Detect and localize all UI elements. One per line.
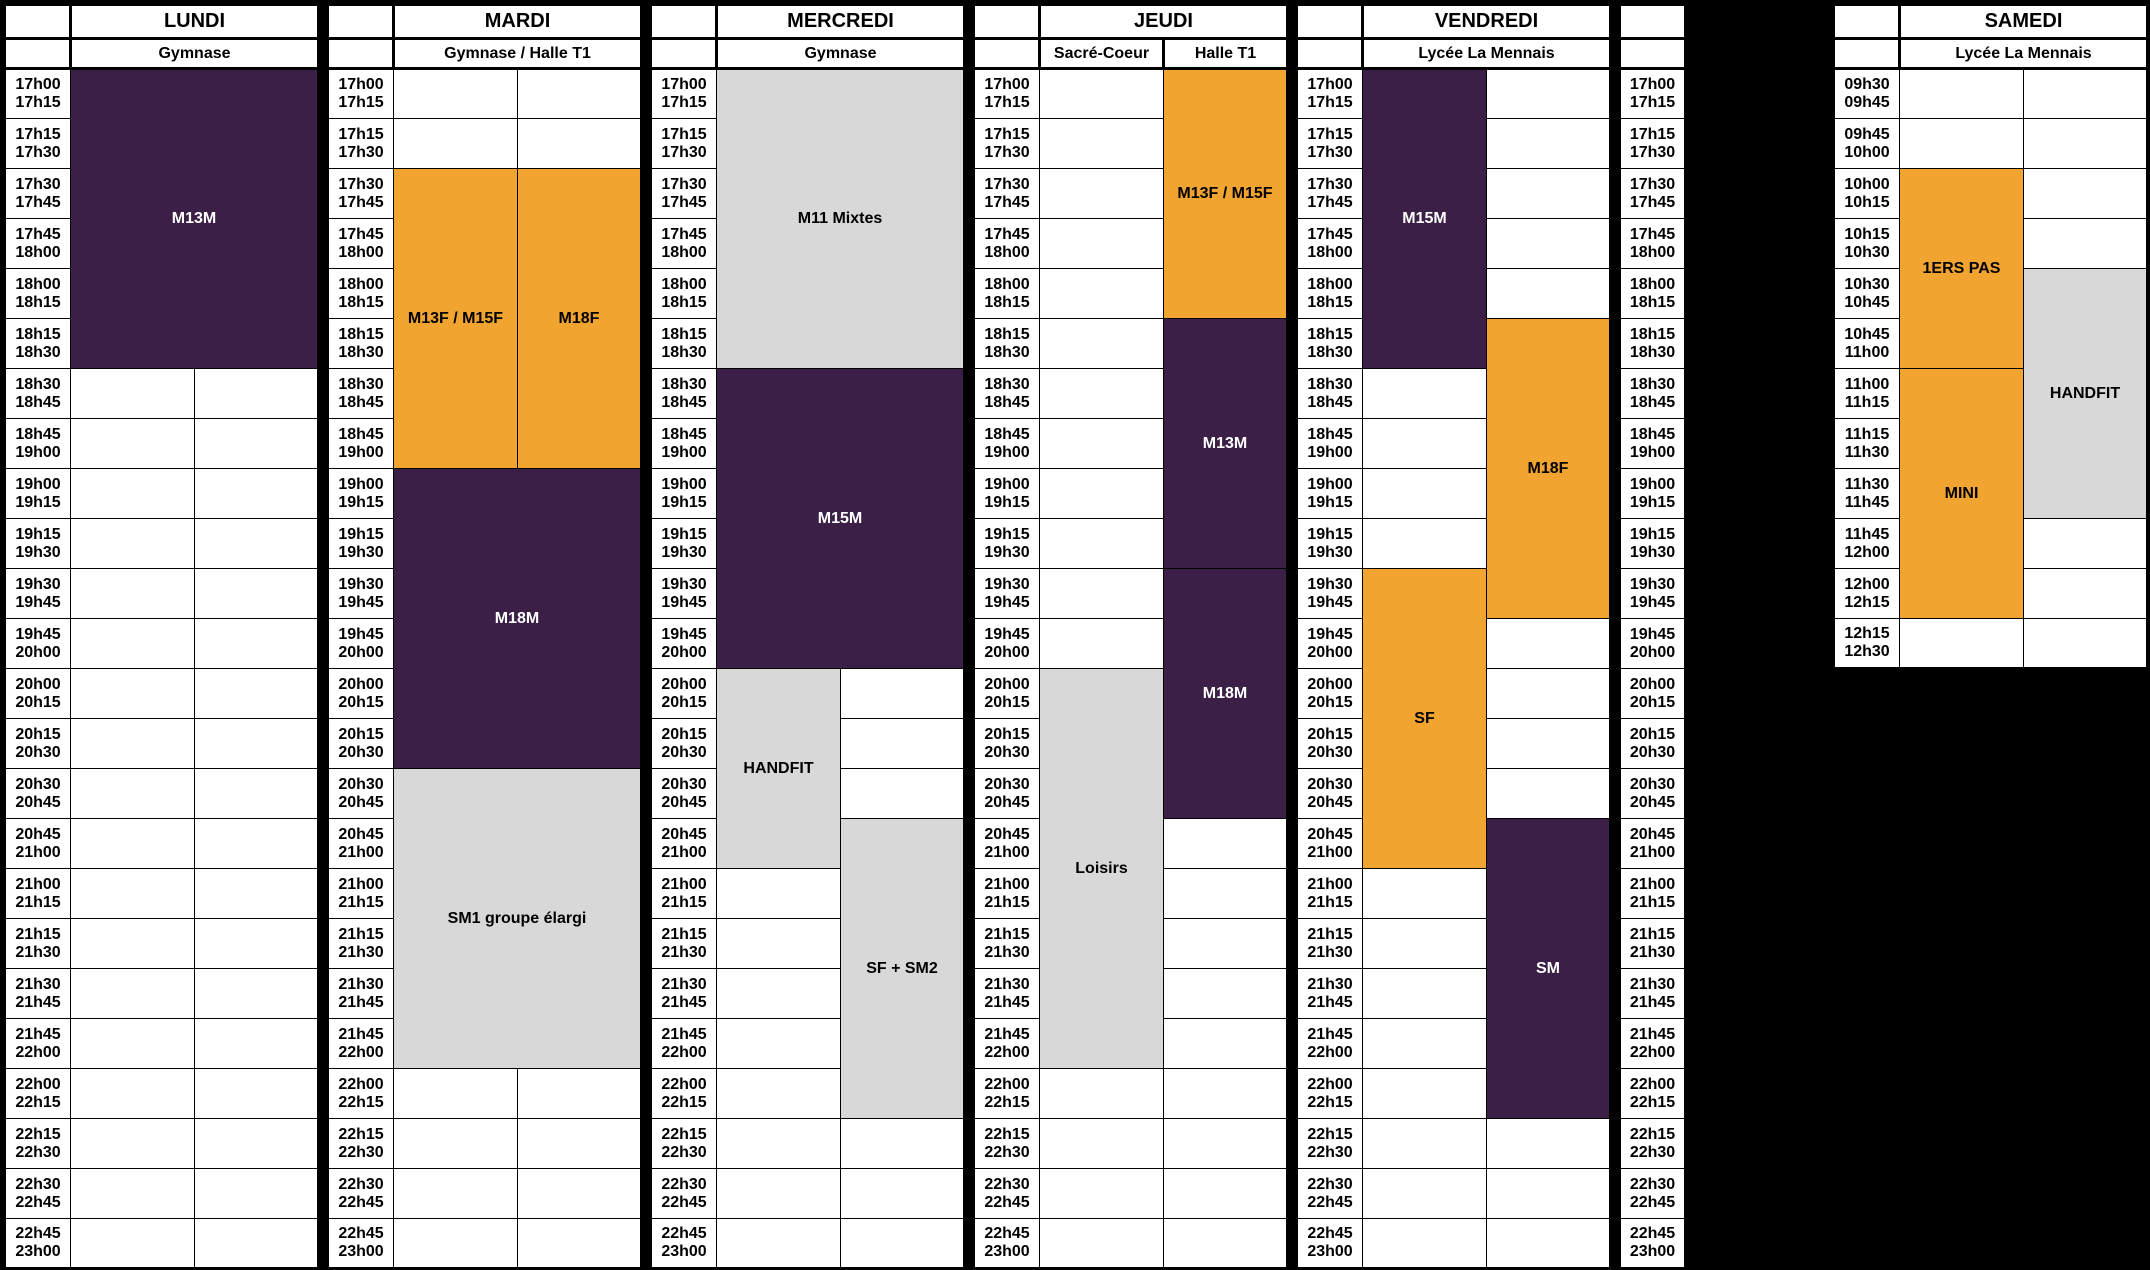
time-start-label: 18h15	[1298, 326, 1362, 344]
empty-slot	[1363, 1069, 1487, 1119]
time-slot-cell: 22h0022h15	[328, 1069, 394, 1119]
time-slot-cell: 18h3018h45	[5, 369, 71, 419]
time-slot-cell: 20h3020h45	[1620, 769, 1686, 819]
time-start-label: 22h15	[1298, 1126, 1362, 1144]
time-slot-cell: 20h0020h15	[651, 669, 717, 719]
time-slot-cell: 11h4512h00	[1834, 519, 1900, 569]
time-start-label: 22h30	[1298, 1176, 1362, 1194]
time-start-label: 21h15	[652, 926, 716, 944]
time-start-label: 19h30	[652, 576, 716, 594]
time-end-label: 21h00	[975, 844, 1039, 862]
time-end-label: 18h45	[1298, 394, 1362, 412]
time-start-label: 21h15	[329, 926, 393, 944]
time-slot-cell: 22h4523h00	[974, 1219, 1040, 1269]
venue-header: Lycée La Mennais	[1900, 39, 2148, 69]
time-slot-cell: 19h0019h15	[974, 469, 1040, 519]
time-start-label: 11h00	[1835, 376, 1899, 394]
time-end-label: 19h30	[6, 544, 70, 562]
time-start-label: 20h45	[6, 826, 70, 844]
schedule-canvas: LUNDIGymnase17h0017h15M13M17h1517h3017h3…	[0, 0, 2150, 1270]
time-start-label: 21h45	[1621, 1026, 1684, 1044]
corner-cell	[651, 5, 717, 39]
time-start-label: 22h30	[652, 1176, 716, 1194]
day-header: LUNDI	[71, 5, 319, 39]
day-table-mercredi: MERCREDIGymnase17h0017h15M11 Mixtes17h15…	[649, 3, 966, 1270]
time-slot-cell: 17h0017h15	[5, 69, 71, 119]
empty-slot	[1040, 569, 1164, 619]
time-start-label: 22h00	[652, 1076, 716, 1094]
time-start-label: 22h15	[652, 1126, 716, 1144]
time-slot-cell: 18h1518h30	[5, 319, 71, 369]
time-slot-cell: 18h4519h00	[651, 419, 717, 469]
time-end-label: 18h00	[1298, 244, 1362, 262]
time-end-label: 20h15	[6, 694, 70, 712]
time-end-label: 17h30	[1298, 144, 1362, 162]
time-slot-cell: 22h3022h45	[974, 1169, 1040, 1219]
time-end-label: 22h00	[975, 1044, 1039, 1062]
day-table-jeudi: JEUDISacré-CoeurHalle T117h0017h15M13F /…	[972, 3, 1289, 1270]
empty-slot	[1040, 269, 1164, 319]
time-end-label: 19h30	[329, 544, 393, 562]
time-end-label: 20h00	[1621, 644, 1684, 662]
time-start-label: 20h00	[975, 676, 1039, 694]
empty-slot	[1040, 419, 1164, 469]
time-slot-cell: 22h1522h30	[328, 1119, 394, 1169]
time-start-label: 21h00	[975, 876, 1039, 894]
time-end-label: 19h00	[1621, 444, 1684, 462]
empty-slot	[195, 569, 319, 619]
empty-slot	[1487, 1169, 1611, 1219]
time-start-label: 11h15	[1835, 426, 1899, 444]
time-start-label: 20h00	[1298, 676, 1362, 694]
empty-slot	[518, 69, 642, 119]
time-start-label: 21h30	[1621, 976, 1684, 994]
event-m13f-m15f: M13F / M15F	[394, 169, 518, 469]
empty-slot	[195, 719, 319, 769]
time-start-label: 20h15	[329, 726, 393, 744]
time-end-label: 22h45	[1621, 1194, 1684, 1212]
time-start-label: 18h30	[975, 376, 1039, 394]
empty-slot	[71, 1169, 195, 1219]
empty-slot	[1363, 919, 1487, 969]
time-start-label: 19h00	[329, 476, 393, 494]
time-end-label: 18h30	[652, 344, 716, 362]
time-slot-cell: 19h4520h00	[5, 619, 71, 669]
time-end-label: 22h15	[975, 1094, 1039, 1112]
time-slot-cell: 20h0020h15	[328, 669, 394, 719]
time-start-label: 17h45	[1298, 226, 1362, 244]
time-slot-cell: 20h1520h30	[1297, 719, 1363, 769]
time-start-label: 20h15	[6, 726, 70, 744]
time-slot-cell: 18h4519h00	[1620, 419, 1686, 469]
time-slot-cell: 20h1520h30	[328, 719, 394, 769]
time-start-label: 18h30	[6, 376, 70, 394]
event-1ers-pas: 1ERS PAS	[1900, 169, 2024, 369]
time-slot-cell: 21h4522h00	[5, 1019, 71, 1069]
time-end-label: 23h00	[1621, 1243, 1684, 1261]
empty-slot	[2024, 519, 2148, 569]
time-start-label: 21h30	[652, 976, 716, 994]
time-slot-cell: 17h4518h00	[651, 219, 717, 269]
venue-header: Gymnase	[71, 39, 319, 69]
time-start-label: 17h15	[329, 126, 393, 144]
time-slot-cell: 22h0022h15	[651, 1069, 717, 1119]
empty-slot	[1363, 1119, 1487, 1169]
time-slot-cell: 19h4520h00	[1620, 619, 1686, 669]
day-header: VENDREDI	[1363, 5, 1611, 39]
empty-slot	[1040, 469, 1164, 519]
empty-slot	[71, 369, 195, 419]
empty-slot	[195, 1169, 319, 1219]
empty-slot	[195, 469, 319, 519]
time-end-label: 21h15	[1298, 894, 1362, 912]
time-start-label: 17h15	[652, 126, 716, 144]
time-slot-cell: 21h4522h00	[974, 1019, 1040, 1069]
time-end-label: 18h45	[329, 394, 393, 412]
time-slot-cell: 17h1517h30	[328, 119, 394, 169]
time-slot-cell: 11h1511h30	[1834, 419, 1900, 469]
time-start-label: 17h45	[975, 226, 1039, 244]
time-start-label: 20h30	[1621, 776, 1684, 794]
time-end-label: 19h15	[1621, 494, 1684, 512]
empty-slot	[2024, 119, 2148, 169]
time-slot-cell: 21h4522h00	[1297, 1019, 1363, 1069]
empty-slot	[71, 419, 195, 469]
event-handfit: HANDFIT	[2024, 269, 2148, 519]
empty-slot	[717, 919, 841, 969]
time-end-label: 21h15	[975, 894, 1039, 912]
time-start-label: 19h45	[1621, 626, 1684, 644]
time-end-label: 20h45	[652, 794, 716, 812]
time-slot-cell: 18h4519h00	[5, 419, 71, 469]
time-end-label: 17h45	[652, 194, 716, 212]
time-slot-cell: 19h0019h15	[1297, 469, 1363, 519]
time-start-label: 19h15	[1298, 526, 1362, 544]
time-start-label: 19h30	[975, 576, 1039, 594]
time-slot-cell: 19h1519h30	[974, 519, 1040, 569]
empty-slot	[518, 119, 642, 169]
time-end-label: 18h00	[1621, 244, 1684, 262]
time-start-label: 18h00	[975, 276, 1039, 294]
time-end-label: 21h00	[652, 844, 716, 862]
time-slot-cell: 20h3020h45	[5, 769, 71, 819]
time-end-label: 21h30	[329, 944, 393, 962]
empty-slot	[518, 1169, 642, 1219]
time-slot-cell: 20h0020h15	[1620, 669, 1686, 719]
time-start-label: 18h45	[329, 426, 393, 444]
time-slot-cell: 21h0021h15	[328, 869, 394, 919]
time-start-label: 20h30	[6, 776, 70, 794]
time-start-label: 17h45	[652, 226, 716, 244]
time-end-label: 21h30	[652, 944, 716, 962]
empty-slot	[1363, 369, 1487, 419]
empty-slot	[1040, 319, 1164, 369]
empty-slot	[195, 869, 319, 919]
time-slot-cell: 21h0021h15	[651, 869, 717, 919]
time-start-label: 18h15	[329, 326, 393, 344]
time-slot-cell: 19h3019h45	[1620, 569, 1686, 619]
time-slot-cell: 20h3020h45	[651, 769, 717, 819]
time-end-label: 20h00	[975, 644, 1039, 662]
empty-slot	[1900, 119, 2024, 169]
empty-slot	[1040, 369, 1164, 419]
time-start-label: 17h30	[652, 176, 716, 194]
time-slot-cell: 21h1521h30	[1297, 919, 1363, 969]
time-start-label: 21h45	[652, 1026, 716, 1044]
time-end-label: 18h30	[6, 344, 70, 362]
time-end-label: 19h00	[329, 444, 393, 462]
time-end-label: 18h15	[1621, 294, 1684, 312]
time-end-label: 17h15	[329, 94, 393, 112]
time-slot-cell: 09h3009h45	[1834, 69, 1900, 119]
event-m13m: M13M	[1164, 319, 1288, 569]
time-start-label: 17h30	[329, 176, 393, 194]
time-slot-cell: 22h4523h00	[1297, 1219, 1363, 1269]
time-end-label: 20h30	[6, 744, 70, 762]
time-slot-cell: 20h3020h45	[974, 769, 1040, 819]
time-end-label: 20h15	[1621, 694, 1684, 712]
empty-slot	[195, 769, 319, 819]
time-slot-cell: 18h3018h45	[1620, 369, 1686, 419]
time-start-label: 18h00	[6, 276, 70, 294]
time-end-label: 18h45	[975, 394, 1039, 412]
time-end-label: 22h15	[652, 1094, 716, 1112]
time-end-label: 21h45	[1621, 994, 1684, 1012]
time-start-label: 18h45	[975, 426, 1039, 444]
time-slot-cell: 18h1518h30	[1620, 319, 1686, 369]
empty-slot	[394, 69, 518, 119]
time-end-label: 20h30	[1298, 744, 1362, 762]
time-start-label: 22h30	[1621, 1176, 1684, 1194]
time-start-label: 21h15	[975, 926, 1039, 944]
empty-slot	[1363, 1219, 1487, 1269]
event-m11-mixtes: M11 Mixtes	[717, 69, 965, 369]
time-slot-cell: 22h0022h15	[974, 1069, 1040, 1119]
event-m18m: M18M	[1164, 569, 1288, 819]
empty-slot	[1040, 69, 1164, 119]
time-slot-cell: 21h0021h15	[1297, 869, 1363, 919]
empty-slot	[2024, 619, 2148, 669]
time-end-label: 19h45	[6, 594, 70, 612]
venue-header: Halle T1	[1164, 39, 1288, 69]
time-slot-cell: 21h3021h45	[1620, 969, 1686, 1019]
time-slot-cell: 22h1522h30	[1620, 1119, 1686, 1169]
time-end-label: 17h30	[975, 144, 1039, 162]
event-sf: SF	[1363, 569, 1487, 869]
time-end-label: 21h30	[975, 944, 1039, 962]
time-end-label: 22h30	[652, 1144, 716, 1162]
time-slot-cell: 20h4521h00	[974, 819, 1040, 869]
empty-slot	[71, 669, 195, 719]
empty-slot	[71, 519, 195, 569]
time-slot-cell: 17h4518h00	[974, 219, 1040, 269]
empty-slot	[195, 669, 319, 719]
empty-slot	[1487, 619, 1611, 669]
time-end-label: 18h45	[652, 394, 716, 412]
time-slot-cell: 21h3021h45	[328, 969, 394, 1019]
empty-slot	[717, 1019, 841, 1069]
time-slot-cell: 21h1521h30	[328, 919, 394, 969]
time-end-label: 19h45	[1298, 594, 1362, 612]
time-end-label: 18h00	[6, 244, 70, 262]
empty-slot	[1164, 1169, 1288, 1219]
time-slot-cell: 20h1520h30	[651, 719, 717, 769]
time-start-label: 19h45	[652, 626, 716, 644]
time-slot-cell: 21h3021h45	[1297, 969, 1363, 1019]
empty-slot	[1040, 1219, 1164, 1269]
empty-slot	[1363, 419, 1487, 469]
time-start-label: 19h00	[975, 476, 1039, 494]
time-end-label: 22h30	[1621, 1144, 1684, 1162]
day-table-samedi: SAMEDILycée La Mennais09h3009h4509h4510h…	[1832, 3, 2149, 670]
time-end-label: 18h00	[652, 244, 716, 262]
time-start-label: 17h00	[975, 76, 1039, 94]
time-start-label: 20h45	[1298, 826, 1362, 844]
time-end-label: 23h00	[329, 1243, 393, 1261]
time-start-label: 17h45	[329, 226, 393, 244]
time-end-label: 20h00	[329, 644, 393, 662]
time-end-label: 20h15	[1298, 694, 1362, 712]
time-end-label: 17h15	[652, 94, 716, 112]
time-slot-cell: 19h0019h15	[651, 469, 717, 519]
time-start-label: 17h30	[1298, 176, 1362, 194]
time-start-label: 11h45	[1835, 526, 1899, 544]
time-start-label: 19h00	[1621, 476, 1684, 494]
time-end-label: 21h15	[6, 894, 70, 912]
time-slot-cell: 19h3019h45	[651, 569, 717, 619]
empty-slot	[394, 1169, 518, 1219]
time-start-label: 19h15	[652, 526, 716, 544]
time-start-label: 22h00	[329, 1076, 393, 1094]
time-slot-cell: 17h0017h15	[328, 69, 394, 119]
time-start-label: 18h30	[1298, 376, 1362, 394]
time-slot-cell: 18h0018h15	[1620, 269, 1686, 319]
time-end-label: 18h30	[329, 344, 393, 362]
time-start-label: 19h30	[1298, 576, 1362, 594]
time-end-label: 20h30	[1621, 744, 1684, 762]
corner-cell	[1834, 39, 1900, 69]
empty-slot	[1164, 1069, 1288, 1119]
time-start-label: 20h30	[329, 776, 393, 794]
time-end-label: 20h15	[329, 694, 393, 712]
time-slot-cell: 19h4520h00	[974, 619, 1040, 669]
venue-header: Gymnase	[717, 39, 965, 69]
empty-slot	[1363, 519, 1487, 569]
time-start-label: 17h00	[1298, 76, 1362, 94]
time-end-label: 19h45	[329, 594, 393, 612]
time-slot-cell: 18h0018h15	[328, 269, 394, 319]
time-start-label: 20h00	[1621, 676, 1684, 694]
time-end-label: 22h00	[652, 1044, 716, 1062]
time-end-label: 19h00	[1298, 444, 1362, 462]
corner-cell	[974, 39, 1040, 69]
time-start-label: 19h15	[1621, 526, 1684, 544]
time-slot-cell: 17h0017h15	[651, 69, 717, 119]
time-end-label: 19h45	[1621, 594, 1684, 612]
time-end-label: 22h45	[329, 1194, 393, 1212]
time-end-label: 22h00	[6, 1044, 70, 1062]
time-slot-cell: 22h4523h00	[5, 1219, 71, 1269]
time-slot-cell: 19h0019h15	[328, 469, 394, 519]
time-slot-cell: 21h0021h15	[5, 869, 71, 919]
empty-slot	[394, 1219, 518, 1269]
time-slot-cell: 17h3017h45	[5, 169, 71, 219]
time-end-label: 21h00	[329, 844, 393, 862]
empty-slot	[394, 1119, 518, 1169]
empty-slot	[2024, 169, 2148, 219]
time-end-label: 20h15	[975, 694, 1039, 712]
time-end-label: 22h30	[1298, 1144, 1362, 1162]
time-end-label: 20h00	[6, 644, 70, 662]
event-sf-sm2: SF + SM2	[841, 819, 965, 1119]
time-start-label: 22h00	[6, 1076, 70, 1094]
empty-slot	[841, 1219, 965, 1269]
time-end-label: 19h45	[975, 594, 1039, 612]
empty-slot	[717, 1069, 841, 1119]
time-end-label: 20h15	[652, 694, 716, 712]
time-start-label: 21h45	[975, 1026, 1039, 1044]
empty-slot	[195, 1019, 319, 1069]
time-start-label: 18h30	[652, 376, 716, 394]
time-slot-cell: 20h4521h00	[1297, 819, 1363, 869]
time-start-label: 22h45	[6, 1225, 70, 1243]
time-slot-cell: 17h0017h15	[974, 69, 1040, 119]
empty-slot	[195, 819, 319, 869]
time-end-label: 19h00	[975, 444, 1039, 462]
time-end-label: 23h00	[975, 1243, 1039, 1261]
time-slot-cell: 11h0011h15	[1834, 369, 1900, 419]
empty-slot	[1164, 1019, 1288, 1069]
time-start-label: 19h45	[6, 626, 70, 644]
empty-slot	[1164, 969, 1288, 1019]
time-start-label: 18h45	[1298, 426, 1362, 444]
event-loisirs: Loisirs	[1040, 669, 1164, 1069]
time-start-label: 18h00	[329, 276, 393, 294]
time-slot-cell: 12h1512h30	[1834, 619, 1900, 669]
time-start-label: 21h45	[6, 1026, 70, 1044]
time-end-label: 19h00	[652, 444, 716, 462]
time-start-label: 20h45	[652, 826, 716, 844]
time-end-label: 19h45	[652, 594, 716, 612]
time-start-label: 12h00	[1835, 576, 1899, 594]
time-end-label: 20h00	[652, 644, 716, 662]
time-start-label: 18h45	[1621, 426, 1684, 444]
time-end-label: 18h45	[1621, 394, 1684, 412]
time-end-label: 22h30	[329, 1144, 393, 1162]
time-start-label: 20h30	[975, 776, 1039, 794]
time-start-label: 22h45	[1298, 1225, 1362, 1243]
empty-slot	[195, 619, 319, 669]
time-slot-cell: 21h0021h15	[974, 869, 1040, 919]
time-start-label: 20h15	[652, 726, 716, 744]
time-end-label: 22h30	[975, 1144, 1039, 1162]
empty-slot	[1040, 1069, 1164, 1119]
time-start-label: 19h30	[329, 576, 393, 594]
time-slot-cell: 20h1520h30	[1620, 719, 1686, 769]
time-end-label: 21h15	[1621, 894, 1684, 912]
time-end-label: 17h45	[1298, 194, 1362, 212]
time-end-label: 17h30	[329, 144, 393, 162]
corner-cell	[1620, 5, 1686, 39]
empty-slot	[518, 1119, 642, 1169]
time-end-label: 22h15	[329, 1094, 393, 1112]
empty-slot	[1487, 719, 1611, 769]
time-end-label: 19h30	[1298, 544, 1362, 562]
time-end-label: 22h45	[6, 1194, 70, 1212]
corner-cell	[1297, 5, 1363, 39]
time-start-label: 09h30	[1835, 76, 1899, 94]
time-start-label: 20h30	[1298, 776, 1362, 794]
